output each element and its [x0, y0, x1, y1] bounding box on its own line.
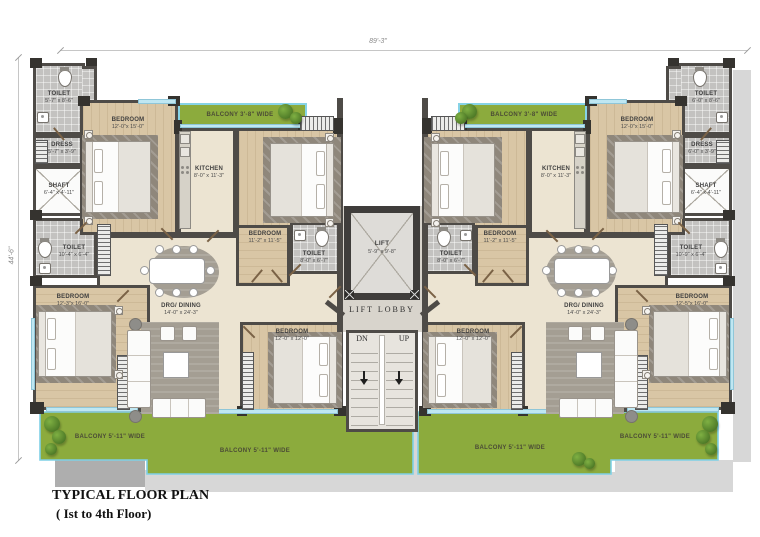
blanket [271, 144, 302, 216]
stair-flight-up [386, 353, 413, 427]
washbasin [294, 230, 306, 241]
dining-chair [189, 245, 198, 254]
plan-title: TYPICAL FLOOR PLAN [52, 488, 209, 504]
pillow [319, 374, 328, 397]
wall-column [78, 96, 90, 106]
dining-chair [155, 245, 164, 254]
duct-box-right [410, 290, 419, 299]
stove-burner [181, 171, 184, 174]
dining-table [554, 258, 610, 284]
sofa-set-right [542, 318, 638, 422]
bed [270, 143, 334, 217]
armchair [568, 326, 583, 341]
lift-label: LIFT5'-9" x 9'-8" [368, 240, 396, 256]
balcony-label-bottom-left-inner: BALCONY 5'-11" WIDE [220, 448, 290, 454]
nightstand [325, 218, 334, 227]
tree [696, 430, 710, 444]
stove-burner [576, 166, 579, 169]
pillow [319, 343, 328, 366]
wall-column [723, 58, 735, 68]
wall-column [723, 210, 735, 220]
blanket [615, 142, 648, 212]
shadow [733, 70, 751, 462]
pillow [316, 151, 325, 176]
wall-column [675, 96, 687, 106]
window [589, 99, 627, 104]
room-label-kitchen-left: KITCHEN8'-0" x 11'-3" [194, 165, 224, 181]
duct-box-left [345, 290, 354, 299]
stair-arrow-up [398, 371, 400, 380]
dining-chair [557, 288, 566, 297]
sink [575, 147, 585, 157]
dimension-line-left [18, 57, 19, 461]
stove-burner [186, 166, 189, 169]
sink [180, 147, 190, 157]
kitchen-counter [179, 131, 191, 229]
headboard [429, 337, 436, 403]
sofa [559, 398, 613, 418]
dining-chair [591, 245, 600, 254]
washbasin [39, 263, 51, 274]
plan-subtitle: ( Ist to 4th Floor) [56, 506, 151, 522]
window [460, 124, 585, 128]
wall-column [30, 276, 42, 286]
wall-column [30, 58, 42, 68]
washbasin [715, 263, 727, 274]
nightstand [431, 133, 440, 142]
dimension-width: 89'-3" [348, 38, 408, 45]
dining-set-left [135, 244, 219, 302]
room-label-bedroom-top-right: BEDROOM12'-0"x 15'-0" [621, 116, 654, 132]
headboard [39, 312, 46, 376]
blanket [654, 312, 689, 376]
room-label-dress-right: DRESS6'-0" x 3'-9" [688, 141, 716, 157]
room-label-bedroom-top-left: BEDROOM12'-0"x 15'-0" [112, 116, 145, 132]
balcony-label-bottom-right-outer: BALCONY 5'-11" WIDE [620, 434, 690, 440]
window-grill [300, 116, 334, 131]
wall-column [30, 402, 44, 414]
bed [273, 336, 337, 404]
dining-table [149, 258, 205, 284]
wall-column [668, 58, 679, 66]
blanket [462, 337, 491, 403]
tree [45, 443, 57, 455]
headboard [329, 337, 336, 403]
stair-arrow-down [363, 371, 365, 380]
pillow [709, 348, 718, 370]
washbasin [460, 230, 472, 241]
balcony-label-bottom-left-outer: BALCONY 5'-11" WIDE [75, 434, 145, 440]
room-label-toilet-top-left: TOILET5'-7" x 8'-6" [45, 90, 73, 106]
dimension-tick [744, 47, 751, 54]
washbasin [716, 112, 728, 123]
side-table [625, 410, 638, 423]
wardrobe [97, 224, 111, 276]
wall-column [86, 58, 97, 66]
stove-burner [581, 166, 584, 169]
room-label-bedroom-bottom-left: BEDROOM12'-3"x 16'-0" [57, 293, 90, 309]
pillow [440, 184, 449, 209]
room-label-living-right: DRG/ DINING14'-0" x 24'-3" [564, 302, 604, 318]
balcony-label-bottom-right-inner: BALCONY 5'-11" WIDE [475, 445, 545, 451]
sofa-set-left [127, 318, 223, 422]
pillow [94, 149, 103, 173]
dining-chair [206, 266, 215, 275]
nightstand [325, 133, 334, 142]
room-label-bedroom-center-right: BEDROOM12'-0" x 12'-0" [456, 328, 490, 344]
stairs-up-label: UP [399, 334, 409, 343]
side-table [129, 410, 142, 423]
bed [428, 336, 492, 404]
room-label-bedroom-bottom-right: BEDROOM12'-5"x 16'-0" [676, 293, 709, 309]
nightstand [114, 306, 123, 315]
room-label-bedroom-mid-left: BEDROOM11'-2" x 11'-5" [248, 230, 281, 246]
dimension-tick [15, 457, 22, 464]
stove-burner [186, 171, 189, 174]
room-label-toilet-mid-left: TOILET10'-4" x 6'-4" [59, 244, 90, 260]
wardrobe [716, 140, 730, 164]
room-label-bedroom-mid-right: BEDROOM11'-2" x 11'-5" [483, 230, 516, 246]
headboard [719, 312, 726, 376]
tree [705, 443, 717, 455]
wall-column [721, 402, 735, 414]
pillow [47, 348, 56, 370]
room-label-toilet-inner-right: TOILET8'-0" x 6'-7" [437, 250, 465, 266]
dimension-line-top [60, 50, 748, 51]
wall-column [723, 276, 735, 286]
window [180, 124, 305, 128]
wardrobe [511, 352, 523, 410]
stair-flight-down [351, 353, 378, 427]
sofa [127, 330, 151, 408]
wardrobe [654, 224, 668, 276]
bed [614, 141, 680, 213]
fridge [575, 134, 585, 144]
nightstand [642, 370, 651, 379]
room-label-toilet-top-right: TOILET6'-0" x 8'-6" [692, 90, 720, 106]
window [138, 99, 176, 104]
dining-chair [172, 288, 181, 297]
headboard [326, 144, 333, 216]
nightstand [84, 130, 93, 139]
nightstand [672, 130, 681, 139]
room-label-bedroom-center-left: BEDROOM12'-0" x 12'-0" [275, 328, 309, 344]
nightstand [431, 218, 440, 227]
stove-burner [581, 171, 584, 174]
balcony-label-top-left: BALCONY 3'-8" WIDE [207, 112, 274, 118]
window [730, 318, 734, 390]
washbasin [37, 112, 49, 123]
stove-burner [576, 171, 579, 174]
pillow [47, 318, 56, 340]
wardrobe [35, 140, 48, 164]
dining-chair [140, 266, 149, 275]
pillow [440, 151, 449, 176]
staircase [346, 330, 418, 432]
tree [290, 112, 302, 124]
sofa [152, 398, 206, 418]
dining-chair [591, 288, 600, 297]
pillow [662, 181, 671, 205]
dining-chair [574, 245, 583, 254]
dining-chair [542, 266, 551, 275]
blanket [463, 144, 494, 216]
dining-chair [155, 288, 164, 297]
pillow [437, 343, 446, 366]
blanket [118, 142, 150, 212]
pillow [662, 149, 671, 173]
dining-chair [189, 288, 198, 297]
headboard [672, 142, 679, 212]
balcony-label-top-right: BALCONY 3'-8" WIDE [491, 112, 558, 118]
wall-column [333, 118, 343, 134]
room-label-kitchen-right: KITCHEN8'-0" x 11'-3" [541, 165, 571, 181]
nightstand [642, 306, 651, 315]
headboard [86, 142, 93, 212]
stair-divider [379, 335, 385, 425]
coffee-table [576, 352, 602, 378]
headboard [432, 144, 439, 216]
wardrobe [242, 352, 254, 410]
blanket [75, 312, 111, 376]
bed [38, 311, 112, 377]
pillow [94, 181, 103, 205]
room-label-shaft-right: SHAFT6'-4" x 4'-11" [691, 182, 721, 198]
dimension-height: 44'-6" [9, 232, 16, 280]
room-label-toilet-inner-left: TOILET8'-0" x 6'-7" [300, 250, 328, 266]
bed [85, 141, 151, 213]
coffee-table [163, 352, 189, 378]
bed [431, 143, 495, 217]
dining-set-right [546, 244, 630, 302]
tree [52, 430, 66, 444]
armchair [160, 326, 175, 341]
armchair [182, 326, 197, 341]
room-label-living-left: DRG/ DINING14'-0" x 24'-3" [161, 302, 201, 318]
tree [584, 458, 595, 469]
room-label-dress-left: DRESS5'-7" x 3'-9" [48, 141, 76, 157]
floor-plan: 89'-3" 44'-6" [0, 0, 760, 537]
window [31, 318, 35, 390]
lift-lobby-label: LIFT LOBBY [349, 305, 415, 314]
dining-chair [172, 245, 181, 254]
bed [653, 311, 727, 377]
room-label-toilet-mid-right: TOILET10'-9" x 6'-4" [676, 244, 707, 260]
pillow [316, 184, 325, 209]
dining-chair [557, 245, 566, 254]
pillow [709, 318, 718, 340]
kitchen-counter [574, 131, 586, 229]
pillow [437, 374, 446, 397]
stove-burner [181, 166, 184, 169]
nightstand [114, 370, 123, 379]
stairs-dn-label: DN [356, 334, 368, 343]
fridge [180, 134, 190, 144]
wall-column [30, 210, 42, 220]
tree [455, 112, 467, 124]
room-label-shaft-left: SHAFT6'-4" x 4'-11" [44, 182, 74, 198]
blanket [274, 337, 303, 403]
armchair [590, 326, 605, 341]
sofa [614, 330, 638, 408]
dining-chair [574, 288, 583, 297]
